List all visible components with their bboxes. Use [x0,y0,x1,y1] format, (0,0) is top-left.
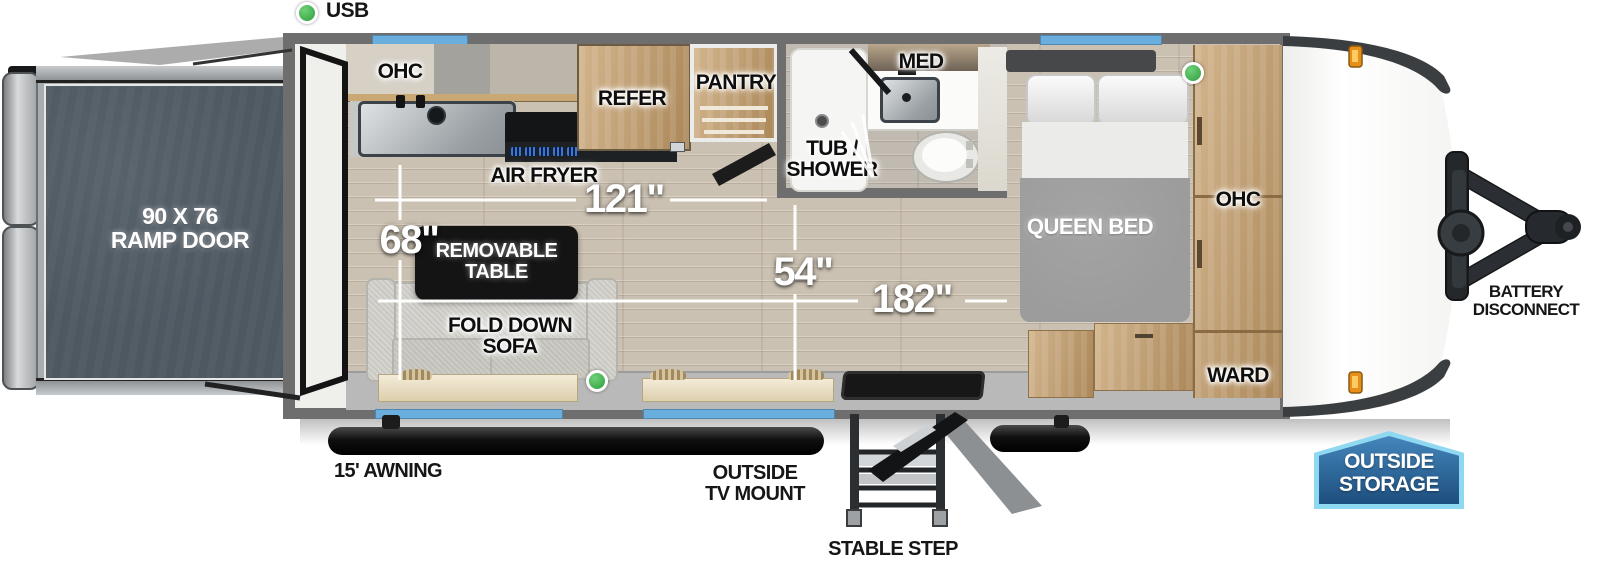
toilet-hinges [966,141,974,169]
rear-shade [60,37,283,65]
bed-headboard [1006,50,1156,72]
pantry-label: PANTRY [688,72,784,93]
bed-pillow-left [1026,74,1096,126]
awning-tube-right [990,425,1090,452]
ramp-door-bottom-rail [36,378,292,395]
entry-door-window [643,409,835,419]
cooktop-burners [511,147,581,157]
bedroom-wardrobe-column [1193,45,1282,398]
bath-sink-drain [902,93,911,102]
bench-board [642,378,834,402]
awning-bracket-right [1054,415,1069,428]
entry-floor-mat [840,371,985,400]
ward-label: WARD [1194,365,1282,386]
tub-drain [815,114,829,128]
floorplan-diagram: 90 X 76 RAMP DOOR [0,0,1600,576]
stable-step-label: STABLE STEP [812,539,974,560]
bed-pillow-right [1097,74,1189,126]
front-cap-bottom-band [1283,359,1450,417]
sink-faucet-2 [416,95,425,108]
bed-foot-cabinet [1094,323,1194,391]
sink-faucet [396,95,405,108]
ramp-door-label: 90 X 76 RAMP DOOR [92,204,268,252]
bed-blanket [1020,178,1190,322]
kitchen-ohc-label: OHC [352,61,448,82]
dim-121-label: 121" [576,177,672,222]
usb-sofa-icon [586,370,608,392]
dim-54-label: 54" [757,250,849,295]
bed-sheet [1022,122,1188,180]
front-cap-top-band [1283,36,1450,94]
hitch-assembly [1439,152,1581,300]
dim-182-label: 182" [857,277,967,322]
tv-mount-label: OUTSIDE TV MOUNT [688,463,822,505]
window-bottom-sofa [375,409,563,419]
bathroom-left-wall [777,44,786,198]
toilet-seat [922,138,967,172]
marker-light-bottom-icon [1349,372,1362,393]
ramp-cable-top [193,50,292,64]
awning-label: 15' AWNING [308,461,468,482]
usb-legend-label: USB [326,0,396,22]
decor-fan-3 [788,369,824,380]
med-label: MED [886,51,956,72]
awning-bracket [382,415,400,429]
window-top-bedroom [1040,35,1162,45]
marker-light-top-icon [1349,46,1362,67]
outside-storage-label: OUTSIDE STORAGE [1314,451,1464,496]
battery-disconnect-label: BATTERY DISCONNECT [1456,283,1596,319]
bed-step-bench [1028,330,1094,398]
shower-surround-wall [978,47,1007,191]
decor-fan-1 [400,369,432,380]
refer-label: REFER [580,88,684,109]
sink-drain [427,106,446,125]
bedroom-ohc-label: OHC [1196,189,1280,210]
ramp-extension-panel-top [2,72,40,226]
usb-bed-icon [1182,62,1204,84]
usb-legend-icon [296,2,318,24]
awning-tube [328,427,824,455]
refrigerator-handle [670,142,685,152]
ramp-extension-panel-bottom [2,226,40,390]
queen-bed-label: QUEEN BED [1020,215,1160,238]
dim-68-label: 68" [363,218,455,263]
decor-fan-2 [650,369,686,380]
ramp-door-top-rail [36,66,292,83]
front-cap-body [1283,40,1456,413]
fold-down-sofa-label: FOLD DOWN SOFA [418,315,602,358]
tub-shower-label: TUB / SHOWER [786,138,878,181]
